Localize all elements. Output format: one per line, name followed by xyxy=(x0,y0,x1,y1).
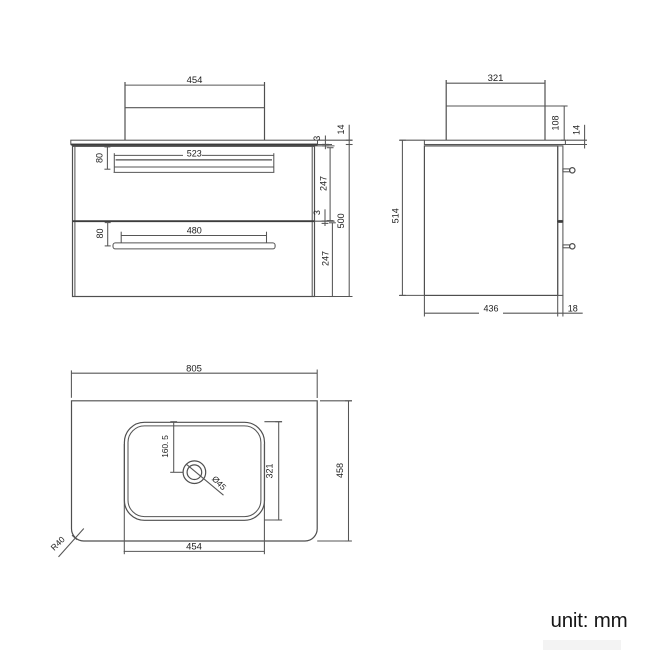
svg-text:454: 454 xyxy=(186,542,202,553)
svg-text:160. 5: 160. 5 xyxy=(160,435,170,458)
svg-text:80: 80 xyxy=(95,228,105,238)
svg-text:247: 247 xyxy=(320,251,330,266)
svg-text:514: 514 xyxy=(390,208,400,223)
svg-text:14: 14 xyxy=(571,125,581,135)
svg-text:321: 321 xyxy=(488,73,504,84)
svg-text:3: 3 xyxy=(312,210,322,215)
svg-text:500: 500 xyxy=(336,213,346,228)
svg-text:523: 523 xyxy=(187,149,202,159)
svg-text:805: 805 xyxy=(186,363,202,374)
svg-text:3: 3 xyxy=(312,136,322,141)
svg-text:18: 18 xyxy=(568,304,578,314)
svg-text:321: 321 xyxy=(265,463,275,478)
svg-text:14: 14 xyxy=(336,124,346,134)
svg-text:247: 247 xyxy=(318,176,328,191)
svg-text:480: 480 xyxy=(187,226,202,236)
svg-text:unit: mm: unit: mm xyxy=(551,609,628,632)
svg-text:108: 108 xyxy=(551,115,561,130)
svg-text:454: 454 xyxy=(187,75,203,86)
svg-text:458: 458 xyxy=(335,463,345,478)
svg-text:436: 436 xyxy=(483,304,498,314)
svg-text:80: 80 xyxy=(95,153,105,163)
